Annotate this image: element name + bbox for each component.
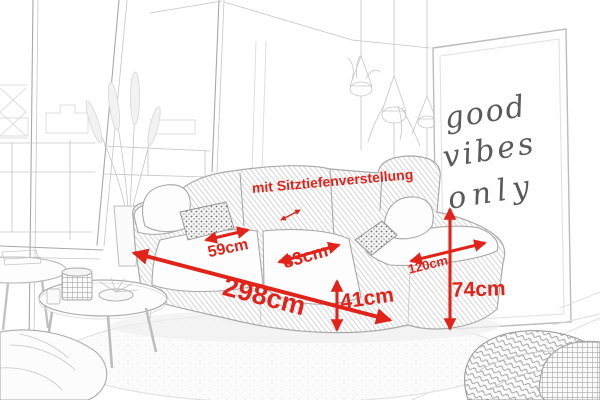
storage-basket	[62, 268, 92, 300]
scene-svg: good vibes only	[0, 0, 600, 400]
glass-jar	[47, 289, 60, 304]
product-dimension-image: good vibes only	[0, 0, 600, 400]
label-total-height: 74cm	[452, 277, 506, 302]
